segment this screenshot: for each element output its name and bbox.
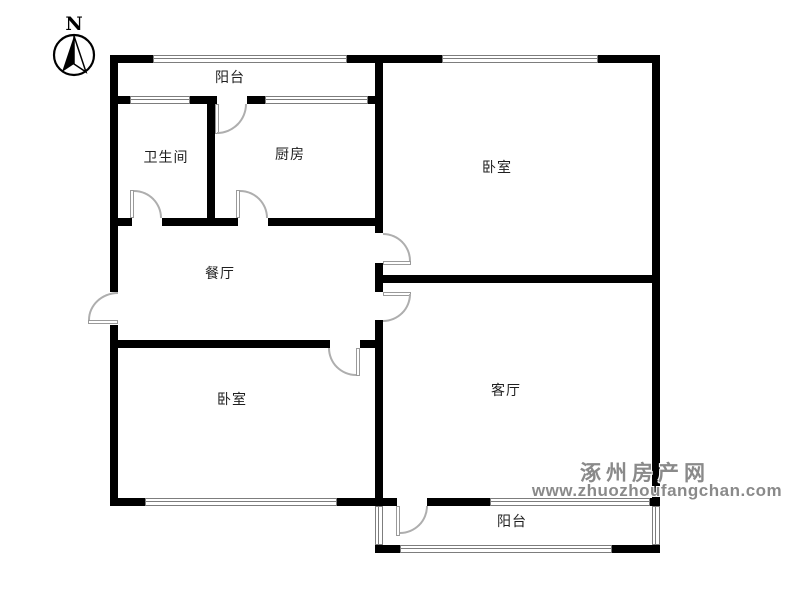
compass-needle-left — [62, 36, 74, 72]
wall-left-upper — [110, 55, 118, 292]
wall-dining-top-a — [110, 218, 132, 226]
wall-dining-top-b — [162, 218, 238, 226]
compass-north-label: N — [65, 13, 82, 35]
room-label-bedroom-top: 卧室 — [482, 157, 512, 177]
room-label-dining: 餐厅 — [205, 263, 235, 283]
wall-right — [652, 55, 660, 506]
bedroom-top-door-leaf — [383, 261, 411, 265]
compass-icon: N — [45, 8, 105, 88]
wall-bottom-c — [427, 498, 490, 506]
living-door-arc — [383, 294, 411, 322]
wall-dining-bottom-a — [110, 340, 330, 348]
bedroom-top-door-arc — [383, 233, 411, 261]
watermark-site-url: www.zhuozhoufangchan.com — [532, 481, 782, 501]
bedroom-bottom-door-arc — [328, 348, 356, 376]
wall-bedroom-living-divider — [383, 275, 652, 283]
wall-bottom-a — [110, 498, 145, 506]
wall-balcony-top-a — [110, 96, 130, 104]
wall-balcony2-bottom-b — [612, 545, 660, 553]
window-balcony2-right — [652, 506, 660, 545]
floor-plan: N — [0, 0, 800, 600]
room-label-bedroom-bottom: 卧室 — [217, 389, 247, 409]
window-kitchen — [265, 96, 368, 104]
wall-bathroom-kitchen-divider — [207, 96, 215, 226]
compass-needle-right — [74, 36, 86, 72]
room-label-kitchen: 厨房 — [275, 144, 305, 164]
window-balcony2-bottom — [400, 545, 612, 553]
window-bedroom-top — [442, 55, 598, 63]
entry-door-arc — [88, 292, 118, 320]
kitchen-balcony-door-arc — [217, 104, 247, 134]
room-label-balcony-bottom: 阳台 — [497, 511, 527, 531]
bedroom-bottom-door-leaf — [356, 348, 360, 376]
wall-top-right — [598, 55, 660, 63]
wall-dining-top-c — [268, 218, 383, 226]
balcony2-door-arc — [400, 506, 428, 534]
wall-balcony2-bottom-a — [375, 545, 400, 553]
wall-balcony-top-c — [247, 96, 265, 104]
wall-bottom-b — [337, 498, 397, 506]
room-label-balcony-top: 阳台 — [215, 67, 245, 87]
wall-dining-bottom-b — [360, 340, 383, 348]
window-bedroom-bottom — [145, 498, 337, 506]
wall-left-lower — [110, 325, 118, 506]
entry-door-leaf — [88, 320, 118, 324]
wall-top-middle — [347, 55, 442, 63]
window-bathroom — [130, 96, 190, 104]
wall-center-upper — [375, 55, 383, 233]
bathroom-door-arc — [134, 190, 162, 218]
window-balcony2-left — [375, 506, 383, 545]
room-label-living: 客厅 — [491, 380, 521, 400]
kitchen-door-arc — [240, 190, 268, 218]
room-label-bathroom: 卫生间 — [144, 147, 189, 167]
wall-center-middle — [375, 263, 383, 292]
window-balcony-top — [153, 55, 347, 63]
